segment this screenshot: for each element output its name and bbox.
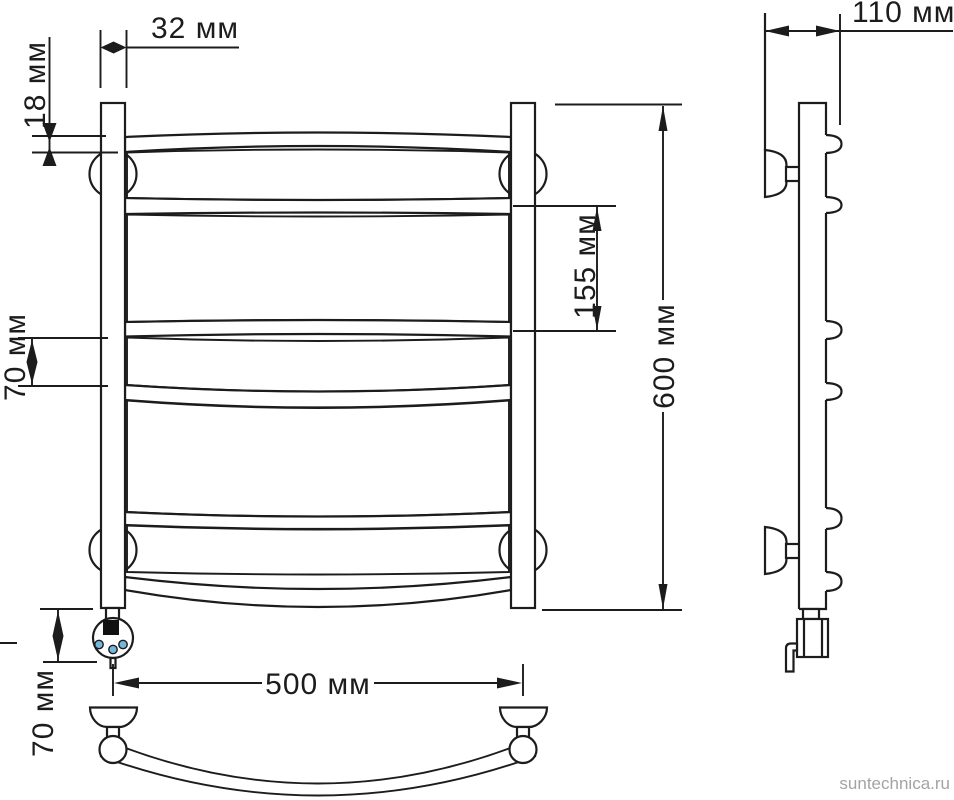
indicator-dot-middle	[109, 645, 117, 653]
indicator-dot-left	[95, 640, 103, 648]
side-heater-housing	[797, 619, 828, 657]
gap-3	[127, 338, 509, 392]
wall-dome-bottom	[765, 527, 787, 574]
dimension-heater-offset: 70 мм	[0, 609, 97, 757]
post-section-right	[510, 736, 537, 763]
dim-32-diamond-arrow	[101, 42, 127, 54]
bottom-view	[90, 708, 547, 796]
dim-70bot-lines	[40, 609, 97, 662]
indicator-dot-right	[119, 640, 127, 648]
dim-18-arrow-up	[43, 147, 57, 166]
bump-4	[826, 383, 842, 400]
bump-3	[826, 321, 842, 339]
watermark-text: suntechnica.ru	[839, 774, 950, 793]
tubes	[125, 133, 511, 608]
heating-element	[93, 608, 133, 668]
dimension-wall-depth: 110 мм	[765, 0, 954, 125]
dimension-total-height: 600 мм	[542, 105, 682, 611]
dim-label-18mm: 18 мм	[19, 41, 52, 129]
dim-label-600mm: 600 мм	[648, 303, 681, 409]
gap-4	[127, 401, 509, 517]
bump-2	[826, 197, 842, 213]
dim-600-arrow-up	[659, 106, 668, 131]
dim-label-500mm: 500 мм	[265, 668, 371, 701]
dim-70bot-diamond-arrow	[53, 611, 64, 660]
side-post-fill	[799, 103, 826, 609]
dim-label-155mm: 155 мм	[569, 213, 602, 319]
tube-6	[125, 577, 511, 607]
post-left	[101, 103, 125, 608]
dimension-rung-gap: 70 мм	[0, 313, 108, 401]
dim-label-32mm: 32 мм	[151, 12, 239, 45]
bump-6	[826, 572, 842, 591]
dim-600-arrow-down	[659, 584, 668, 609]
heater-block	[103, 620, 119, 635]
side-view	[765, 13, 842, 672]
side-heater-neck	[803, 609, 819, 619]
dim-110-arrow-right	[816, 26, 840, 37]
front-view	[90, 103, 547, 668]
dimension-total-width: 500 мм	[113, 664, 523, 701]
gap-5	[127, 526, 509, 575]
gap-1	[127, 150, 509, 201]
tube-3	[125, 320, 511, 337]
post-section-left	[100, 736, 127, 763]
bump-1	[826, 135, 842, 153]
dome-neck-bottom	[786, 544, 800, 558]
dim-label-110mm: 110 мм	[852, 0, 954, 29]
post-right	[511, 103, 535, 608]
tube-end-bumps	[826, 135, 842, 591]
dome-neck-top	[786, 167, 800, 181]
dim-label-70mm-gap: 70 мм	[0, 313, 32, 401]
mount-cup-left	[90, 708, 137, 728]
dim-500-arrow-right	[497, 678, 522, 689]
dim-label-70mm-heater: 70 мм	[27, 669, 60, 757]
bump-5	[826, 508, 842, 529]
dim-500-arrow-left	[114, 678, 139, 689]
dimension-post-top-width: 32 мм	[101, 12, 240, 88]
dim-110-lines	[765, 14, 953, 125]
wall-dome-top	[765, 150, 787, 197]
towel-rail-drawing: 32 мм 18 мм 110 мм 155 мм 60	[0, 0, 954, 800]
technical-drawing-page: 32 мм 18 мм 110 мм 155 мм 60	[0, 0, 954, 800]
mount-cup-right	[500, 708, 547, 728]
gap-2	[127, 215, 509, 323]
bottom-tube-top-arc	[123, 747, 513, 784]
power-cable	[786, 644, 797, 672]
dim-110-arrow-left	[765, 26, 789, 37]
